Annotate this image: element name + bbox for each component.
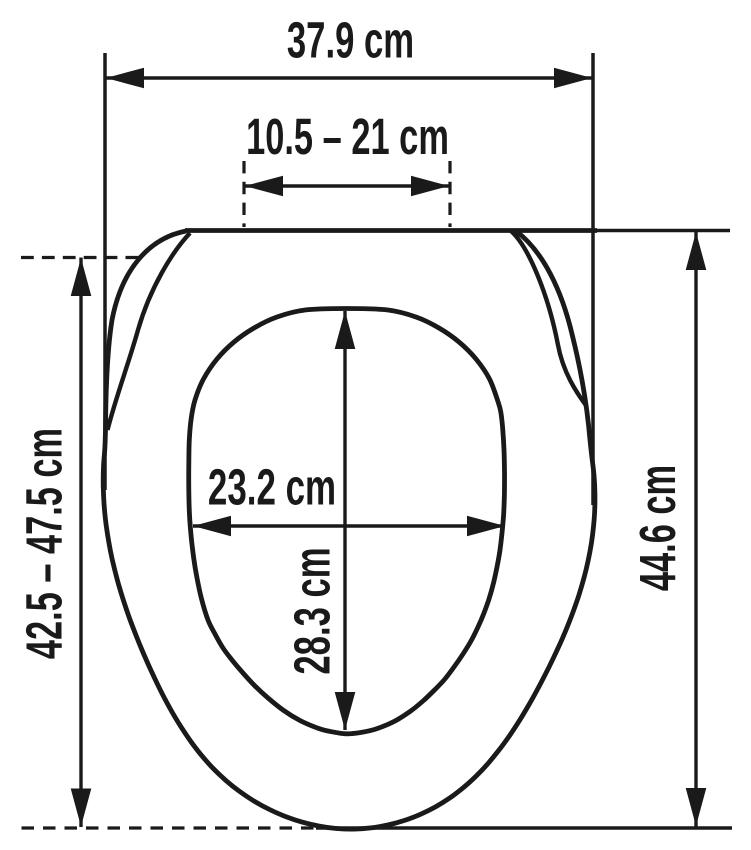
svg-text:42.5 – 47.5 cm: 42.5 – 47.5 cm <box>17 428 73 659</box>
svg-text:28.3 cm: 28.3 cm <box>285 547 341 674</box>
svg-text:10.5 – 21 cm: 10.5 – 21 cm <box>246 109 449 165</box>
svg-text:23.2 cm: 23.2 cm <box>208 459 336 516</box>
svg-text:37.9 cm: 37.9 cm <box>287 13 414 69</box>
svg-text:44.6 cm: 44.6 cm <box>630 465 686 591</box>
